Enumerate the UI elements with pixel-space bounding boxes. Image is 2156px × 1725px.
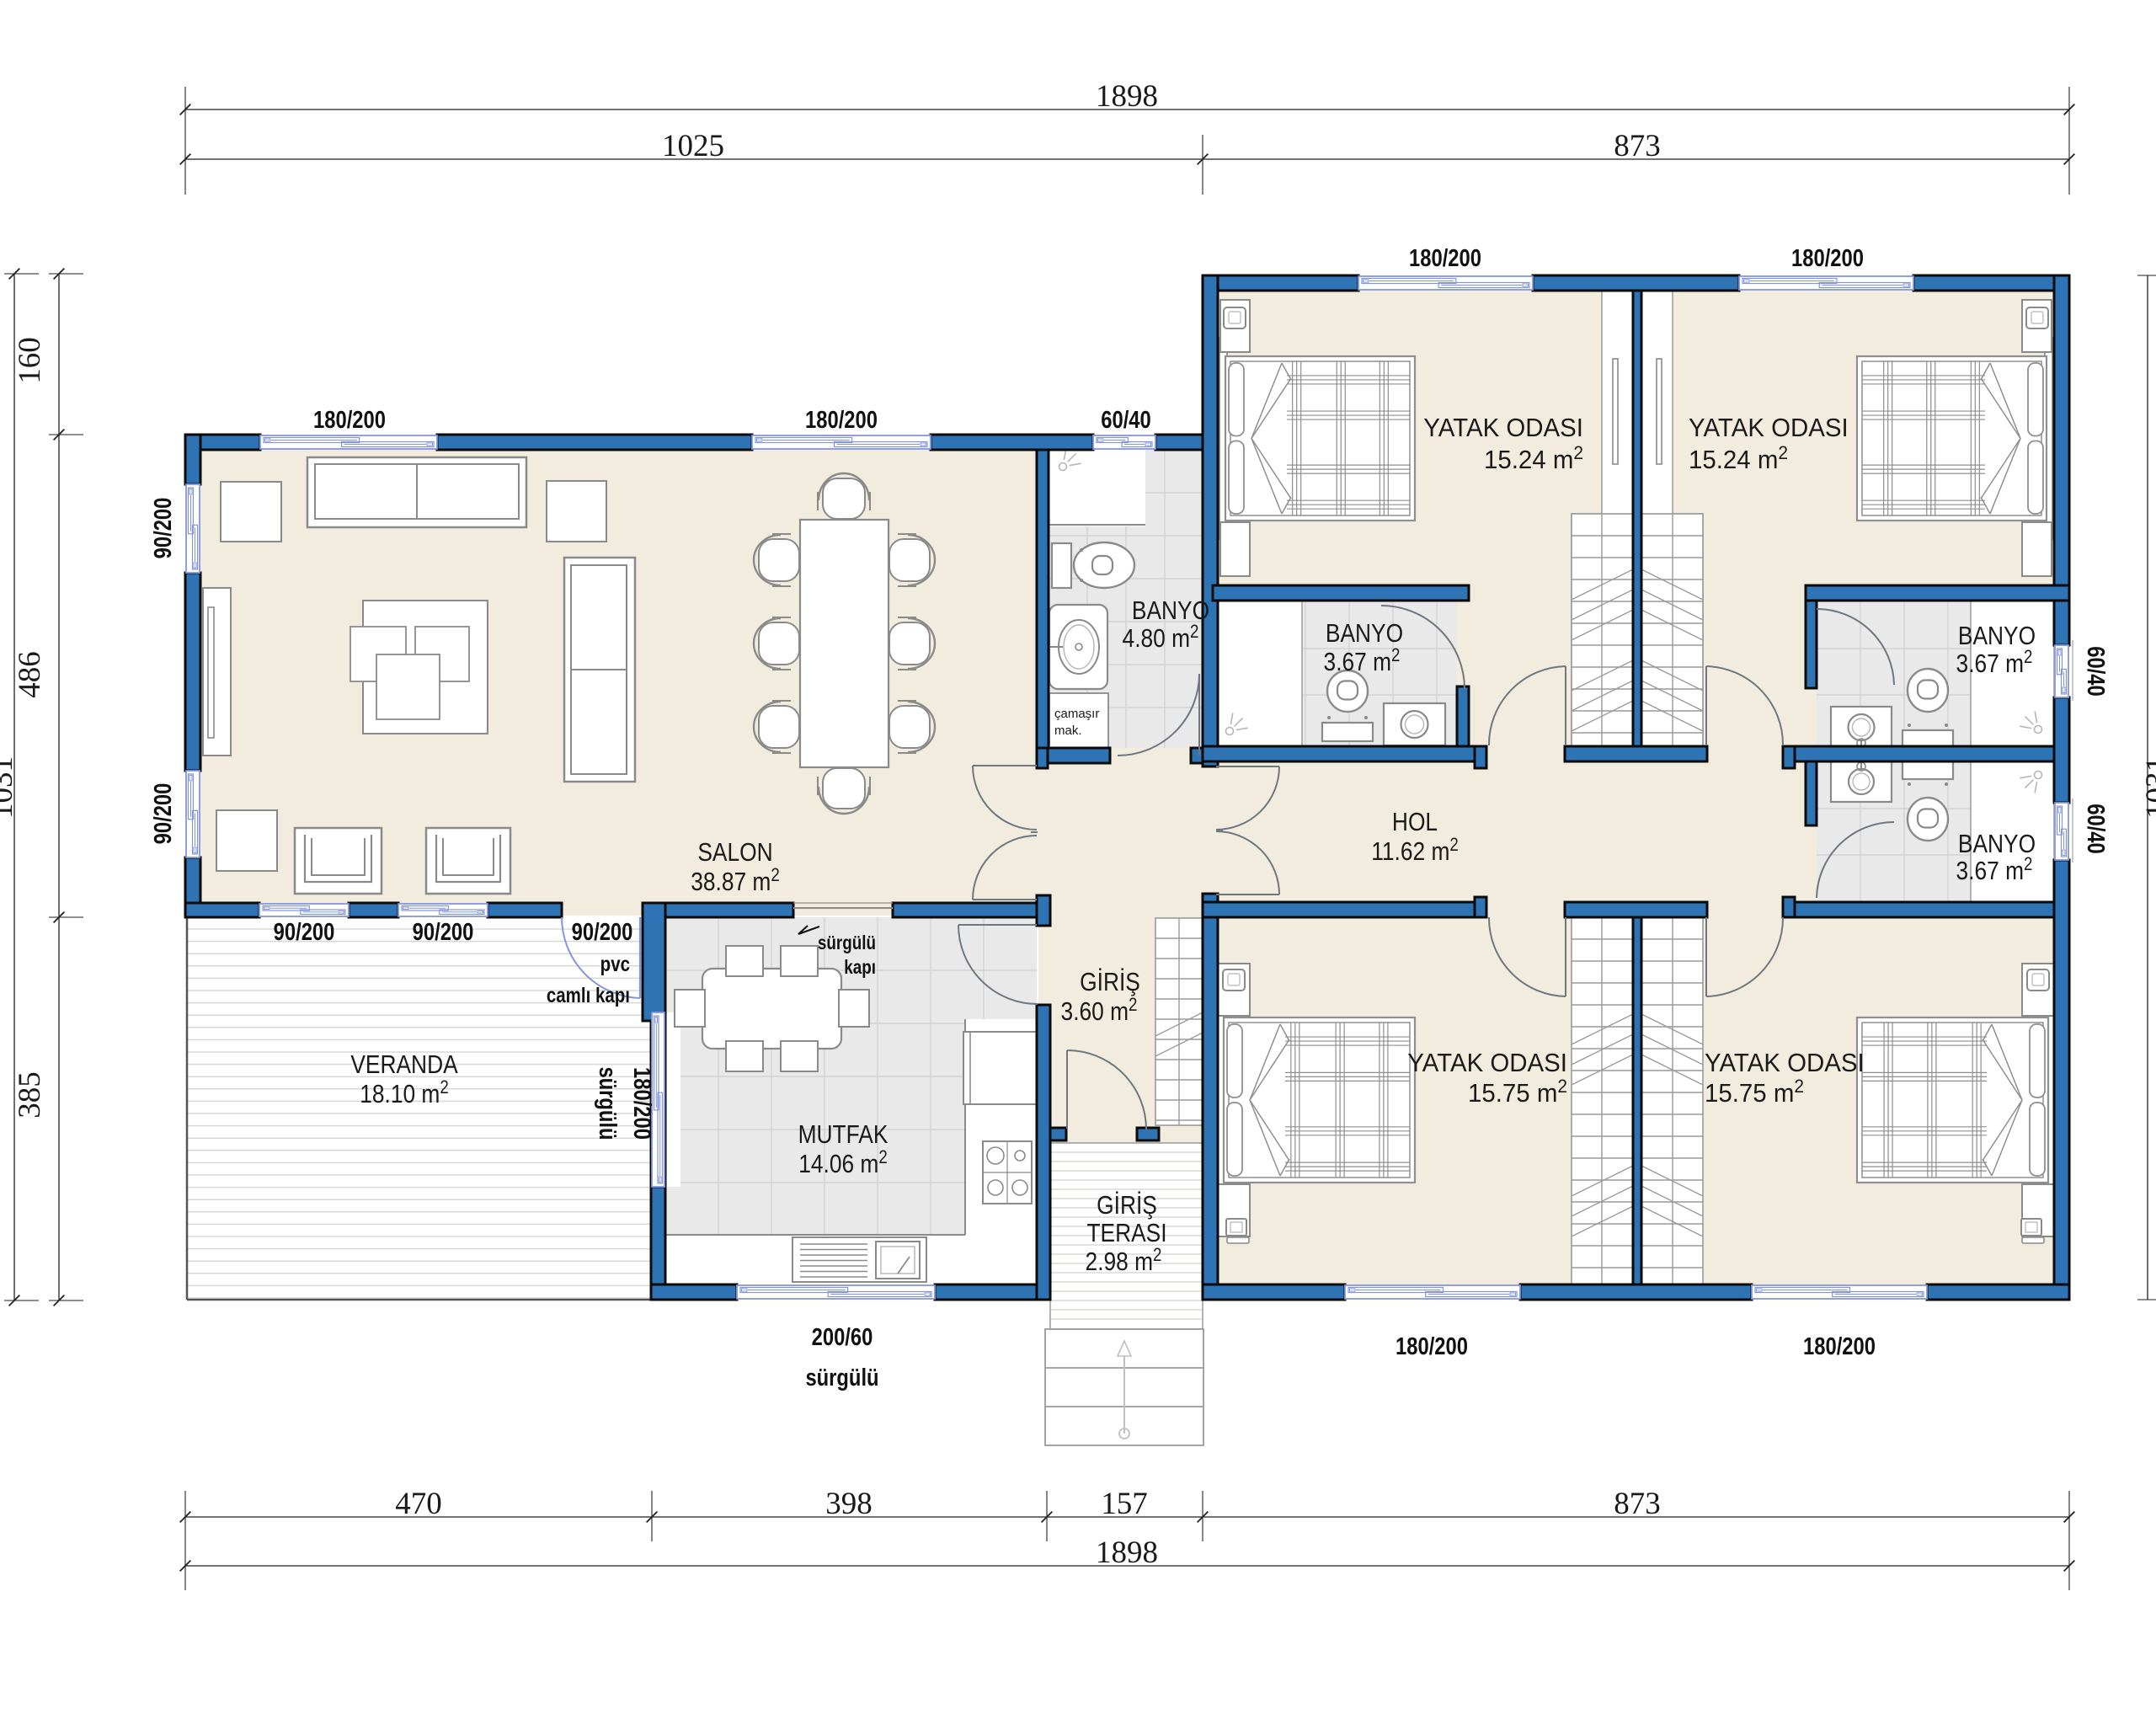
- svg-text:1031: 1031: [0, 756, 19, 819]
- svg-text:1898: 1898: [1096, 79, 1158, 114]
- svg-text:4.80 m2: 4.80 m2: [1123, 622, 1199, 654]
- svg-text:GİRİŞ: GİRİŞ: [1080, 967, 1140, 997]
- svg-text:3.60 m2: 3.60 m2: [1061, 996, 1138, 1027]
- svg-text:160: 160: [13, 337, 47, 384]
- svg-text:180/200: 180/200: [1791, 244, 1864, 272]
- svg-text:90/200: 90/200: [413, 918, 474, 946]
- svg-text:1031: 1031: [2140, 756, 2156, 819]
- svg-text:mak.: mak.: [1054, 724, 1082, 738]
- svg-text:1898: 1898: [1096, 1535, 1158, 1570]
- svg-text:pvc: pvc: [600, 952, 631, 975]
- svg-text:180/200: 180/200: [628, 1067, 656, 1140]
- svg-text:YATAK ODASI: YATAK ODASI: [1705, 1049, 1865, 1077]
- svg-text:kapı: kapı: [844, 957, 876, 978]
- svg-text:385: 385: [13, 1071, 47, 1119]
- svg-text:GİRİŞ: GİRİŞ: [1097, 1190, 1157, 1220]
- svg-text:11.62 m2: 11.62 m2: [1371, 836, 1459, 867]
- svg-text:470: 470: [395, 1487, 442, 1521]
- svg-text:HOL: HOL: [1392, 808, 1438, 836]
- svg-text:15.24 m2: 15.24 m2: [1484, 443, 1583, 475]
- svg-text:YATAK ODASI: YATAK ODASI: [1423, 414, 1583, 442]
- svg-text:60/40: 60/40: [2082, 646, 2110, 696]
- svg-text:MUTFAK: MUTFAK: [798, 1120, 889, 1149]
- svg-text:BANYO: BANYO: [1132, 596, 1209, 625]
- svg-text:60/40: 60/40: [2082, 804, 2110, 853]
- svg-text:3.67 m2: 3.67 m2: [1956, 855, 2033, 886]
- svg-text:90/200: 90/200: [149, 783, 177, 845]
- svg-text:VERANDA: VERANDA: [350, 1050, 458, 1079]
- svg-text:180/200: 180/200: [313, 406, 386, 434]
- svg-text:38.87 m2: 38.87 m2: [691, 866, 780, 897]
- svg-text:157: 157: [1101, 1487, 1148, 1521]
- svg-text:sürgülü: sürgülü: [805, 1364, 878, 1391]
- svg-text:90/200: 90/200: [572, 918, 633, 946]
- svg-text:60/40: 60/40: [1101, 406, 1150, 434]
- svg-text:14.06 m2: 14.06 m2: [798, 1148, 888, 1179]
- svg-text:YATAK ODASI: YATAK ODASI: [1689, 414, 1849, 442]
- svg-text:sürgülü: sürgülü: [594, 1066, 622, 1140]
- svg-text:15.24 m2: 15.24 m2: [1689, 443, 1788, 475]
- svg-text:TERASI: TERASI: [1086, 1219, 1166, 1247]
- svg-text:873: 873: [1614, 1487, 1661, 1521]
- svg-text:90/200: 90/200: [274, 918, 335, 946]
- svg-text:BANYO: BANYO: [1326, 619, 1403, 648]
- svg-text:200/60: 200/60: [812, 1323, 873, 1351]
- svg-text:2.98 m2: 2.98 m2: [1086, 1246, 1162, 1277]
- svg-text:3.67 m2: 3.67 m2: [1324, 646, 1401, 677]
- svg-text:180/200: 180/200: [1396, 1332, 1468, 1360]
- svg-text:sürgülü: sürgülü: [818, 932, 876, 953]
- svg-text:YATAK ODASI: YATAK ODASI: [1407, 1049, 1567, 1077]
- svg-text:15.75 m2: 15.75 m2: [1468, 1076, 1567, 1108]
- svg-text:486: 486: [13, 651, 47, 698]
- svg-text:1025: 1025: [662, 129, 724, 163]
- svg-text:90/200: 90/200: [149, 498, 177, 559]
- svg-text:BANYO: BANYO: [1958, 622, 2036, 650]
- svg-text:398: 398: [825, 1487, 873, 1521]
- svg-text:180/200: 180/200: [805, 406, 878, 434]
- svg-text:180/200: 180/200: [1409, 244, 1481, 272]
- svg-text:3.67 m2: 3.67 m2: [1956, 648, 2033, 679]
- svg-text:çamaşır: çamaşır: [1054, 707, 1099, 721]
- svg-text:camlı kapı: camlı kapı: [547, 983, 630, 1007]
- svg-text:180/200: 180/200: [1803, 1332, 1876, 1360]
- svg-text:18.10 m2: 18.10 m2: [360, 1078, 449, 1109]
- svg-text:15.75 m2: 15.75 m2: [1705, 1076, 1804, 1108]
- svg-text:873: 873: [1614, 129, 1661, 163]
- svg-text:SALON: SALON: [697, 838, 772, 867]
